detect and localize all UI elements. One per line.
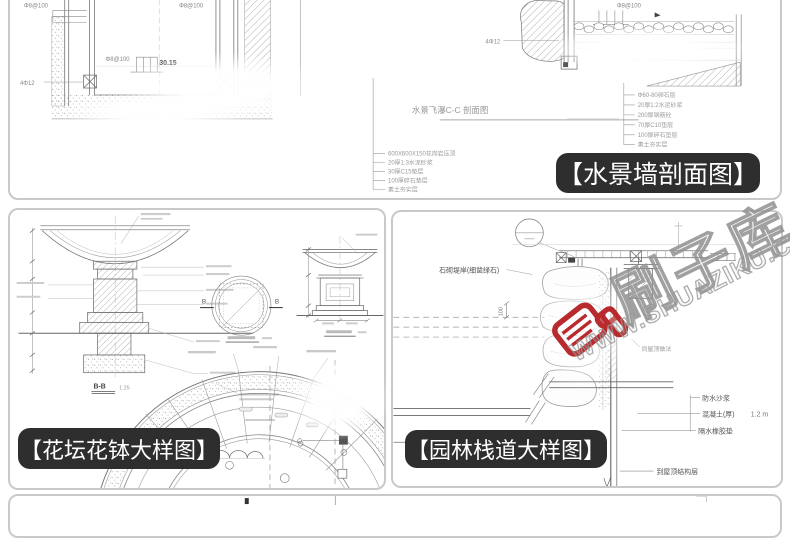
section-title: 水景飞瀑C-C 剖面图: [412, 105, 488, 115]
callout: 100厚碎石垫层: [388, 177, 428, 185]
level-dim: 30.15: [159, 60, 177, 67]
callout: 200厚钢筋砼: [638, 111, 672, 119]
rebar-mesh-label: Φ8@100: [24, 3, 49, 9]
layer-label: 混凝土(厚): [702, 410, 734, 419]
roof-layer-label: 到屋顶结构层: [656, 467, 698, 476]
stone-embankment-label: 石砌堤岸(细凿绿石): [439, 266, 499, 275]
rebar-bar-label: 4Φ12: [20, 81, 35, 87]
callout: 20厚1:2水泥砂浆: [638, 101, 683, 109]
callout: 30厚C15垫层: [388, 168, 423, 176]
rebar-mesh-label: Φ8@100: [617, 3, 642, 9]
depth-dim: 100: [499, 307, 505, 316]
callout: Φ60-80卵石层: [638, 91, 676, 99]
plan-title-squiggle: [226, 336, 272, 342]
rebar-mesh-label: Φ8@100: [106, 57, 131, 63]
right-layer-callouts: Φ60-80卵石层 20厚1:2水泥砂浆 200厚钢筋砼 70厚C10垫层 10…: [567, 83, 682, 149]
cut-marker: B: [275, 299, 279, 306]
cut-marker: B: [202, 299, 206, 306]
illegible-annotations: [322, 234, 377, 334]
rebar-bar-label: 4Φ12: [254, 81, 269, 87]
anchor-label: 同屋顶做法: [642, 345, 672, 353]
pot-elevation: [297, 236, 384, 323]
callout: 素土夯实层: [638, 141, 668, 149]
cad-collage-page: { "colors": {"pill_bg":"#2e2e2e","pill_t…: [0, 0, 790, 500]
callout: 素土夯实层: [388, 185, 418, 193]
scale-label: 1:25: [119, 385, 130, 391]
section-mark-title: B-B: [93, 383, 105, 390]
callout: 20厚1:3水泥砂浆: [388, 159, 433, 167]
callout: 70厚C10垫层: [638, 121, 673, 129]
label-flower-pot-detail: 【花坛花钵大样图】: [18, 428, 220, 469]
stacked-stones: [540, 267, 608, 407]
title-underline: [92, 391, 116, 393]
width-dim: 1.2 m: [751, 412, 769, 419]
wall-edge-section: [503, 0, 741, 86]
pot-plan: [200, 276, 283, 335]
callout: 100厚碎石垫层: [638, 131, 678, 139]
callout: 600X600X150花岗岩压顶: [388, 150, 456, 158]
panel-next-row-sliver: [8, 494, 782, 538]
pot-section: [19, 216, 254, 393]
sliver-drawing: [10, 496, 780, 536]
label-boardwalk-detail: 【园林栈道大样图】: [405, 430, 607, 468]
layer-label: 防水沙浆: [702, 394, 730, 403]
left-layer-callouts: 600X600X150花岗岩压顶 20厚1:3水泥砂浆 30厚C15垫层 100…: [373, 78, 455, 193]
label-water-wall-section: 【水景墙剖面图】: [556, 153, 760, 193]
layer-label: 隔水橡胶垫: [698, 426, 733, 435]
illegible-annotations: [188, 346, 336, 353]
rebar-bar-label: 4Φ12: [486, 39, 501, 45]
rebar-mesh-label: Φ8@100: [179, 3, 204, 9]
